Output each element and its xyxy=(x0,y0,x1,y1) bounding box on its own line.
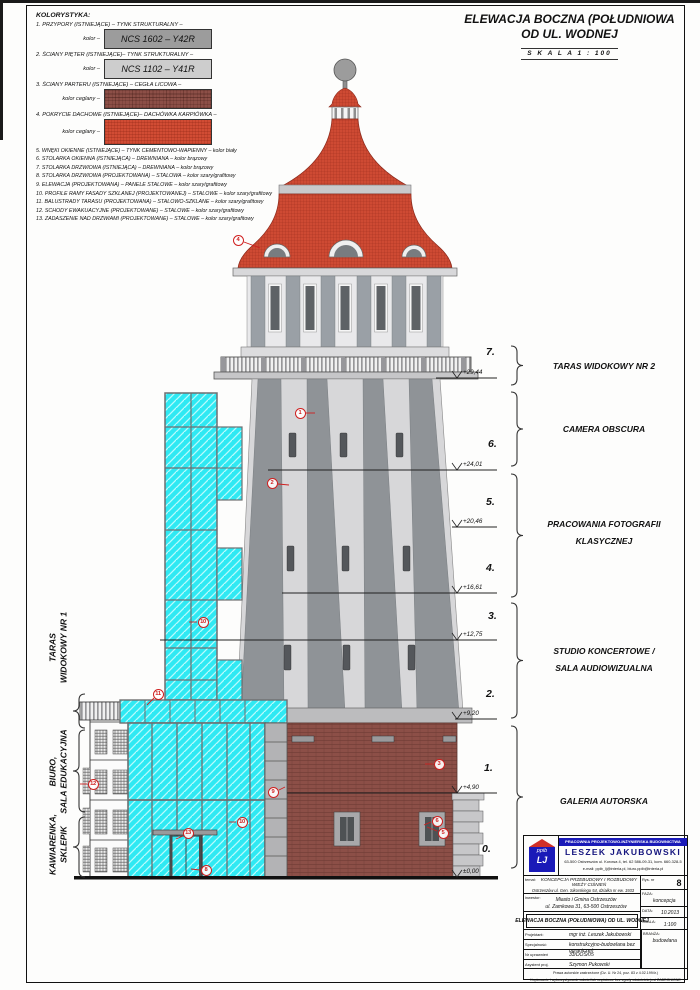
faza-value: koncepcja xyxy=(641,898,688,904)
label-taras-widokowy-2: TARAS WIDOKOWY NR 2 xyxy=(528,358,680,375)
elevation-29-44: +29,44 xyxy=(463,369,482,376)
data-value: 10.2013 xyxy=(653,910,687,916)
marker-1: 1 xyxy=(295,408,306,419)
marker-8: 8 xyxy=(201,865,212,876)
faza-label: FAZA: xyxy=(642,891,653,896)
label-studio-koncertowe: STUDIO KONCERTOWE / SALA AUDIOWIZUALNA xyxy=(528,643,680,677)
level-number-1: 1. xyxy=(484,762,506,774)
level-number-6: 6. xyxy=(488,438,510,450)
label-pracownia-line-1: PRACOWANIA FOTOGRAFII xyxy=(528,516,680,533)
ground-line xyxy=(74,876,498,880)
skala-value: 1:100 xyxy=(653,922,687,928)
temat-label: temat: xyxy=(525,877,536,882)
label-camera-obscura: CAMERA OBSCURA xyxy=(528,421,680,438)
label-pracownia-fotografii: PRACOWANIA FOTOGRAFII KLASYCZNEJ xyxy=(528,516,680,550)
marker-10b: 10 xyxy=(237,817,248,828)
level-number-0: 0. xyxy=(482,843,504,855)
copyright-line-2: Kopiowanie i wykorzystywanie całości lub… xyxy=(524,977,687,984)
marker-9: 9 xyxy=(268,787,279,798)
projektant-label: Projektant: xyxy=(525,932,544,937)
existing-building xyxy=(80,702,134,877)
glass-tower xyxy=(165,393,242,700)
label-studio-line-1: STUDIO KONCERTOWE / xyxy=(528,643,680,660)
inwestor-line-1: Miasto i Gmina Ostrzeszów xyxy=(534,897,638,903)
label-kawiarenka-sklepik: KAWIARENKA, SKLEPIK xyxy=(48,800,69,890)
marker-3: 3 xyxy=(434,759,445,770)
rysnr-value: 8 xyxy=(676,878,681,888)
branza-label: BRANŻA: xyxy=(643,931,660,936)
elevation-12-75: +12,75 xyxy=(463,631,482,638)
label-taras1-line-1: TARAS xyxy=(48,593,59,703)
tower-belvedere xyxy=(214,276,478,379)
steel-panel-strip xyxy=(265,723,287,877)
marker-4: 4 xyxy=(233,235,244,246)
tower-shaft xyxy=(237,379,472,723)
logo-text-lj: LJ xyxy=(529,855,555,866)
company-email: e-mail: ppib_lj@interia.pl, biuro.ppib@i… xyxy=(559,866,687,873)
level-number-4: 4. xyxy=(486,562,508,574)
data-label: DATA: xyxy=(642,908,653,913)
marker-2: 2 xyxy=(267,478,278,489)
right-braces xyxy=(511,346,523,868)
level-number-3: 3. xyxy=(488,610,510,622)
label-taras-widokowy-1: TARAS WIDOKOWY NR 1 xyxy=(48,593,69,703)
label-taras1-line-2: WIDOKOWY NR 1 xyxy=(58,593,69,703)
tower-finial xyxy=(329,59,361,119)
stone-quoins xyxy=(452,793,484,877)
specjalnosc-label: Specjalność: xyxy=(525,942,547,947)
level-number-5: 5. xyxy=(486,496,508,508)
brick-base xyxy=(287,723,484,877)
marker-6: 6 xyxy=(432,816,443,827)
label-kawiarenka-line-1: KAWIARENKA, xyxy=(48,800,59,890)
label-pracownia-line-2: KLASYCZNEJ xyxy=(528,533,680,550)
marker-13: 13 xyxy=(183,828,194,839)
company-owner: LESZEK JAKUBOWSKI xyxy=(559,846,687,858)
label-galeria-autorska: GALERIA AUTORSKA xyxy=(528,793,680,810)
company-logo-roof-icon xyxy=(529,839,555,847)
rysnr-label: Rys. nr xyxy=(642,877,654,882)
company-address: 63-500 Ostrzeszów ul. Korowa 4, tel. 62 … xyxy=(559,859,687,866)
elevation-9-20: +9,20 xyxy=(463,710,479,717)
level-number-7: 7. xyxy=(486,346,508,358)
marker-12: 12 xyxy=(88,779,99,790)
drawing-title-cell: ELEWACJA BOCZNA (POŁUDNIOWA) OD UL. WODN… xyxy=(526,914,638,928)
elevation-20-46: +20,46 xyxy=(463,518,482,525)
elevation-0-00: ±0,00 xyxy=(463,868,479,875)
company-banner: PRACOWNIA PROJEKTOWO-INŻYNIERSKA BUDOWNI… xyxy=(559,838,687,846)
inwestor-line-2: ul. Zamkowa 31, 63-500 Ostrzeszów xyxy=(534,904,638,910)
company-logo: ppib LJ xyxy=(529,847,555,872)
glass-pavilion xyxy=(120,700,287,877)
marker-11: 11 xyxy=(153,689,164,700)
elevation-4-90: +4,90 xyxy=(463,784,479,791)
level-number-2: 2. xyxy=(486,688,508,700)
logo-text-ppib: ppib xyxy=(529,847,555,855)
elevation-16-61: +16,61 xyxy=(463,584,482,591)
branza-value: budowlana xyxy=(642,938,688,944)
label-studio-line-2: SALA AUDIOWIZUALNA xyxy=(528,660,680,677)
label-kawiarenka-line-2: SKLEPIK xyxy=(58,800,69,890)
asystent-label: Asystent proj. xyxy=(525,962,549,967)
marker-10a: 10 xyxy=(198,617,209,628)
terrace-balustrade xyxy=(221,357,471,372)
uprawnienia-label: Nr uprawnień xyxy=(525,952,548,957)
temat-line-2: WIEŻY CIŚNIEŃ xyxy=(538,882,640,887)
elevation-24-01: +24,01 xyxy=(463,461,482,468)
uprawnienia-value: 33/DOŚ/05 xyxy=(569,952,594,958)
projektant-value: mgr inż. Leszek Jakubowski xyxy=(569,932,631,938)
drawing-sheet: KOLORYSTYKA: 1. PRZYPORY (ISTNIEJĄCE) – … xyxy=(0,0,700,990)
marker-5: 5 xyxy=(438,828,449,839)
tower-roof xyxy=(233,119,457,276)
